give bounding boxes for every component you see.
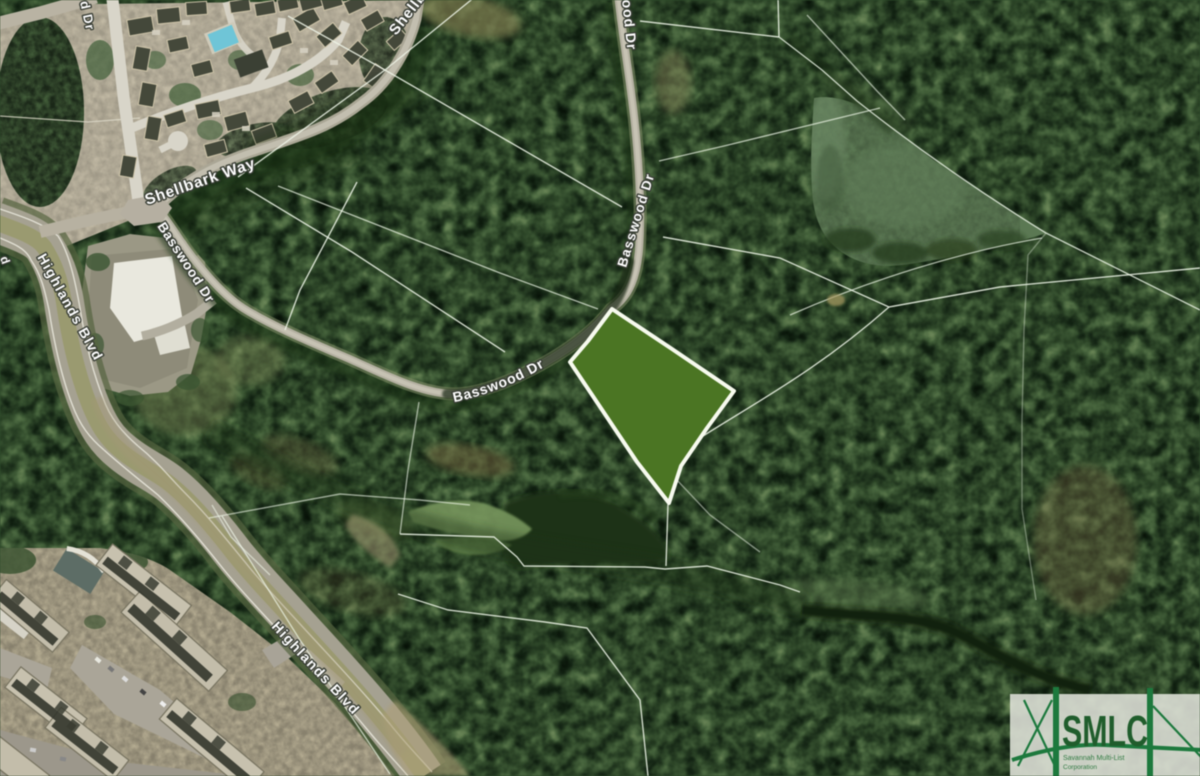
svg-text:Corporation: Corporation [1063,764,1097,771]
svg-text:Savannah Multi-List: Savannah Multi-List [1063,755,1125,762]
svg-text:SMLC: SMLC [1062,707,1148,756]
